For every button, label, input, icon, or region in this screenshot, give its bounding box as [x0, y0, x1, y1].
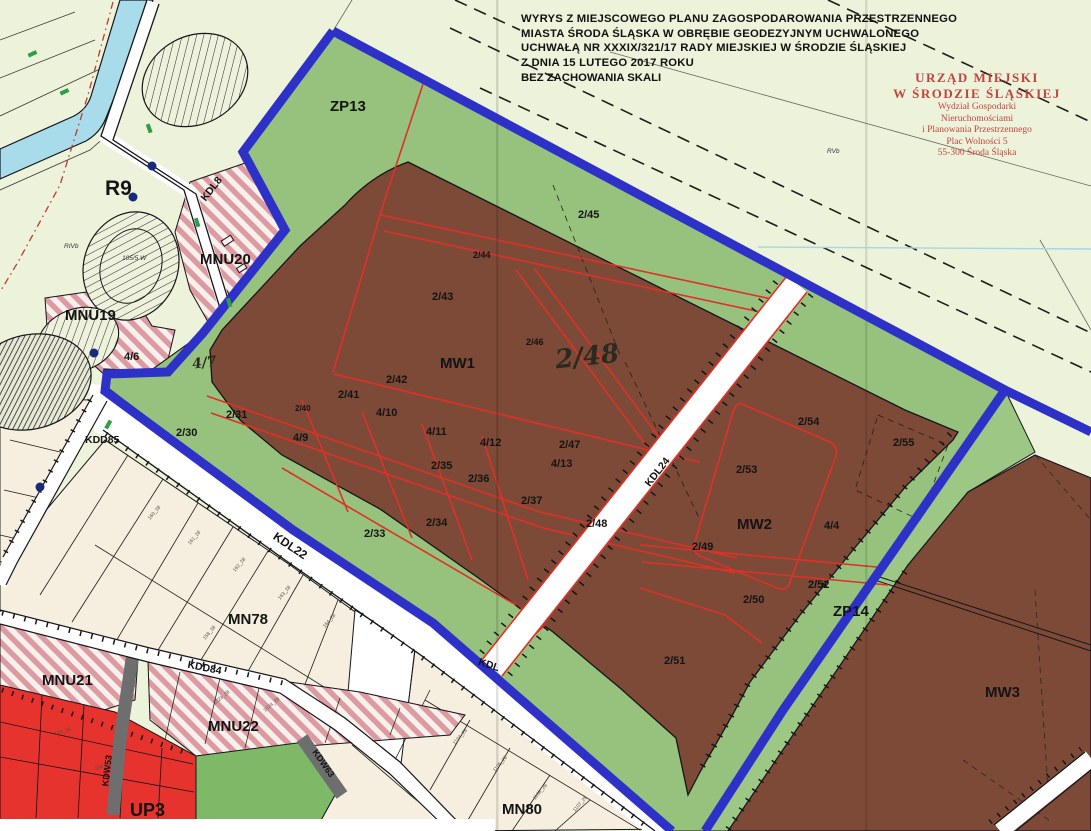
parcel-label-2-42: 2/42	[386, 374, 407, 386]
scan-margin	[0, 819, 495, 831]
parcel-label-2-33: 2/33	[364, 528, 385, 540]
stamp-line-5: i Planowania Przestrzennego	[862, 125, 1091, 137]
parcel-label-4-11: 4/11	[426, 426, 447, 438]
zone-label-up3: UP3	[130, 800, 165, 820]
parcel-label-2-34: 2/34	[426, 517, 448, 529]
plan-extract-page: ZP13 R9 MNU20 MNU19 MW1 MW2 MW3 ZP14 MN7…	[0, 0, 1091, 831]
stamp-line-6: Plac Wolności 5	[862, 137, 1091, 149]
road-label-kdd85: KDD85	[85, 434, 120, 446]
parcel-label-2-30: 2/30	[176, 427, 197, 439]
parcel-label-2-53: 2/53	[736, 464, 757, 476]
parcel-label-4-4: 4/4	[824, 520, 840, 532]
zone-label-mn78: MN78	[228, 611, 268, 628]
soil-label-rivb: RIVb	[64, 243, 79, 250]
parcel-label-4-9: 4/9	[293, 432, 308, 444]
parcel-label-2-51: 2/51	[664, 655, 685, 667]
parcel-label-2-43: 2/43	[432, 291, 453, 303]
parcel-label-2-40: 2/40	[295, 404, 311, 413]
scale-note: BEZ ZACHOWANIA SKALI	[521, 72, 661, 84]
parcel-label-2-35: 2/35	[431, 460, 452, 472]
parcel-label-4-12: 4/12	[480, 437, 501, 449]
parcel-label-2-37: 2/37	[521, 495, 542, 507]
parcel-label-2-50: 2/50	[743, 594, 764, 606]
parcel-label-2-47: 2/47	[559, 439, 580, 451]
zone-label-mnu22: MNU22	[208, 718, 259, 735]
parcel-label-2-41: 2/41	[338, 389, 359, 401]
zone-label-mw1: MW1	[440, 355, 475, 372]
parcel-label-2-55: 2/55	[893, 437, 914, 449]
title-block: WYRYS Z MIEJSCOWEGO PLANU ZAGOSPODAROWAN…	[521, 12, 991, 70]
parcel-label-2-36: 2/36	[468, 473, 489, 485]
zone-label-mnu20: MNU20	[200, 251, 251, 268]
title-line-1: WYRYS Z MIEJSCOWEGO PLANU ZAGOSPODAROWAN…	[521, 12, 991, 27]
parcel-label-2-31: 2/31	[226, 409, 247, 421]
title-line-2: MIASTA ŚRODA ŚLĄSKA W OBRĘBIE GEODEZYJNY…	[521, 27, 991, 42]
parcel-label-2-45: 2/45	[578, 209, 599, 221]
parcel-label-2-46: 2/46	[526, 337, 544, 347]
zone-label-mw3: MW3	[985, 684, 1020, 701]
parcel-label-2-48-small: 2/48	[586, 518, 607, 530]
title-line-3: UCHWAŁĄ NR XXXIX/321/17 RADY MIEJSKIEJ W…	[521, 41, 991, 56]
title-line-4: Z DNIA 15 LUTEGO 2017 ROKU	[521, 56, 991, 71]
handwritten-4-7: 4/7	[191, 353, 218, 372]
zone-label-mnu19: MNU19	[65, 307, 116, 324]
zone-label-zp13: ZP13	[330, 98, 366, 115]
zone-label-mnu21: MNU21	[42, 672, 93, 689]
parcel-label-2-49: 2/49	[692, 541, 713, 553]
office-stamp: URZĄD MIEJSKI W ŚRODZIE ŚLĄSKIEJ Wydział…	[862, 70, 1091, 160]
parcel-label-2-44: 2/44	[473, 250, 491, 260]
soil-label-105-5: 105/5 W	[122, 255, 147, 262]
stamp-line-4: Nieruchomościami	[862, 114, 1091, 126]
parcel-label-2-54: 2/54	[798, 416, 820, 428]
zone-label-mw2: MW2	[737, 516, 772, 533]
stamp-line-7: 55-300 Środa Śląska	[862, 148, 1091, 160]
parcel-label-4-6: 4/6	[124, 351, 139, 363]
parcel-label-4-13: 4/13	[551, 458, 572, 470]
zone-label-mn80: MN80	[502, 801, 542, 818]
stamp-line-2: W ŚRODZIE ŚLĄSKIEJ	[862, 86, 1091, 102]
stamp-line-3: Wydział Gospodarki	[862, 102, 1091, 114]
soil-label-rvb: RVb	[827, 148, 840, 155]
zone-label-zp14: ZP14	[833, 603, 870, 620]
scan-fold-1	[496, 0, 499, 831]
zone-label-r9: R9	[105, 177, 132, 200]
parcel-label-4-10: 4/10	[376, 407, 397, 419]
parcel-label-2-52: 2/52	[808, 579, 829, 591]
stamp-line-1: URZĄD MIEJSKI	[862, 70, 1091, 86]
